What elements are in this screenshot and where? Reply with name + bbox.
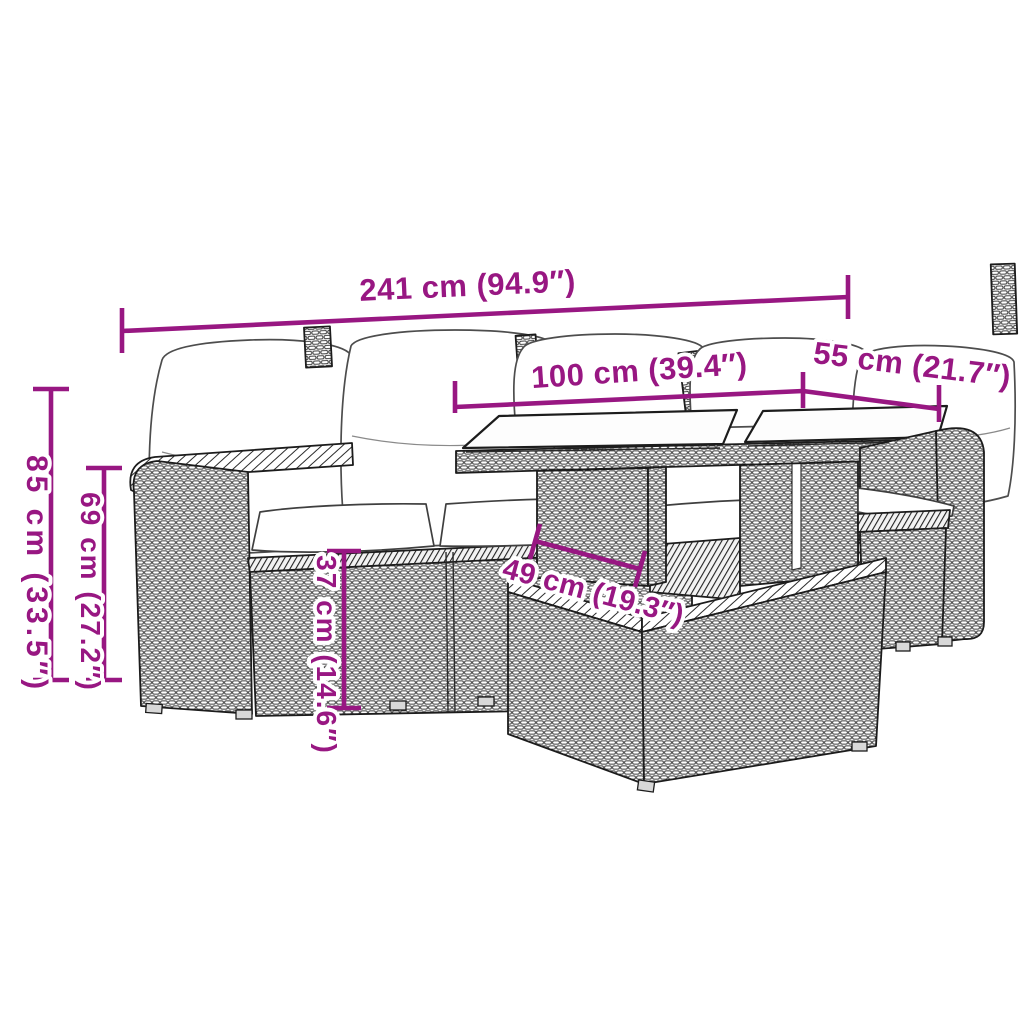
sofa-foot — [146, 703, 163, 713]
dimension-overall-height: 85 cm (33.5″) — [20, 389, 69, 693]
sofa-foot — [390, 701, 406, 710]
pillow-strap — [991, 264, 1017, 335]
armchair-foot — [938, 637, 952, 646]
ottoman-foot — [637, 780, 654, 792]
dimension-label-backrest-height: 69 cm (27.2″) — [75, 492, 106, 692]
table-glass-panel-left — [463, 410, 737, 448]
ottoman-foot — [852, 742, 867, 751]
table-pedestal-left-side — [648, 465, 666, 586]
sofa-foot — [478, 697, 494, 706]
armchair-foot — [896, 642, 910, 651]
dimension-label-seat-height: 37 cm (14.6″) — [311, 555, 342, 755]
sofa-armrest-left — [133, 461, 252, 714]
dimension-label-overall-width: 241 cm (94.9″) — [359, 263, 577, 308]
seat-cushion-1 — [252, 504, 434, 552]
dimension-diagram: 241 cm (94.9″) 100 cm (39.4″) 55 cm (21.… — [0, 0, 1024, 1024]
pillow-strap — [304, 326, 332, 367]
dimension-label-overall-height: 85 cm (33.5″) — [20, 455, 53, 693]
dimension-backrest-height: 69 cm (27.2″) — [75, 468, 122, 692]
sofa-foot — [236, 710, 252, 719]
diagram-canvas: 241 cm (94.9″) 100 cm (39.4″) 55 cm (21.… — [0, 0, 1024, 1024]
